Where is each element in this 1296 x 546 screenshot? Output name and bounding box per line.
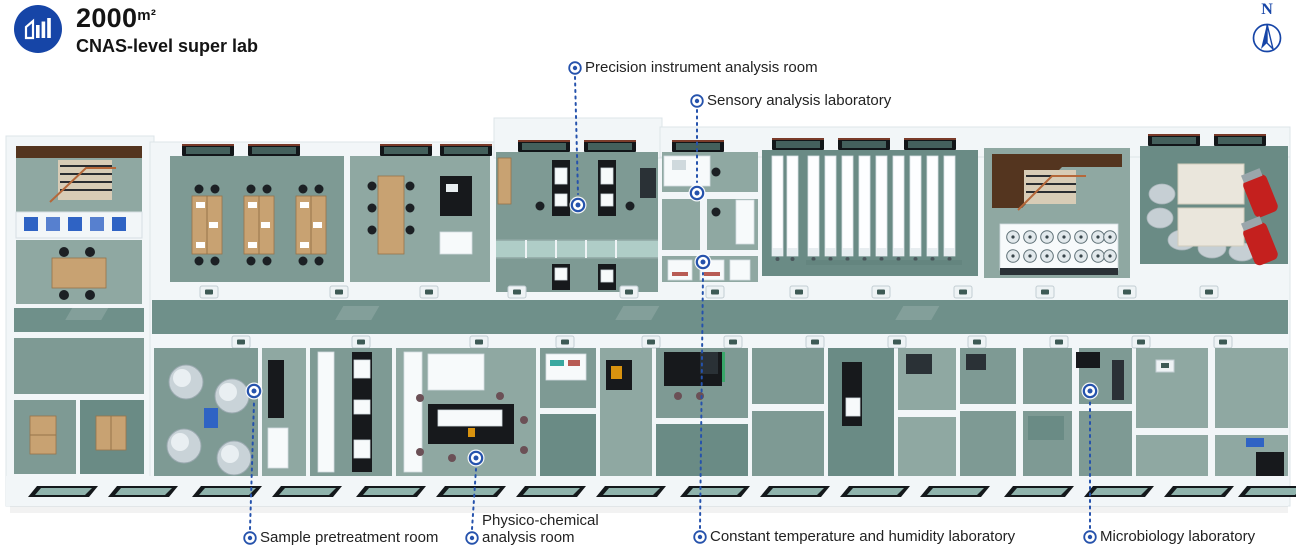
callout-label-constant-temperature-and-humidity-laboratory: Constant temperature and humidity labora… — [710, 528, 1015, 545]
compass-north-label: N — [1244, 2, 1290, 17]
callout-label-line: Constant temperature and humidity labora… — [710, 528, 1015, 545]
header: 2000m² CNAS-level super lab — [14, 5, 258, 57]
area-title: 2000m² — [76, 5, 258, 32]
callout-label-physico-chemical-analysis-room: Physico-chemicalanalysis room — [482, 512, 599, 546]
floorplan-render — [0, 0, 1296, 546]
area-unit: m² — [137, 7, 156, 24]
compass: N — [1244, 2, 1290, 62]
callout-label-line: Sample pretreatment room — [260, 529, 438, 546]
callout-label-microbiology-laboratory: Microbiology laboratory — [1100, 528, 1255, 545]
callout-label-precision-instrument-analysis-room: Precision instrument analysis room — [585, 59, 818, 76]
header-titles: 2000m² CNAS-level super lab — [76, 5, 258, 57]
callout-label-sample-pretreatment-room: Sample pretreatment room — [260, 529, 438, 546]
callout-label-line: Precision instrument analysis room — [585, 59, 818, 76]
area-value: 2000 — [76, 3, 137, 33]
callout-label-line: analysis room — [482, 529, 599, 546]
north-arrow-icon — [1247, 17, 1287, 57]
callout-label-line: Microbiology laboratory — [1100, 528, 1255, 545]
page: 2000m² CNAS-level super lab N — [0, 0, 1296, 546]
page-subtitle: CNAS-level super lab — [76, 36, 258, 57]
building-bars-icon — [14, 5, 62, 53]
callout-label-sensory-analysis-laboratory: Sensory analysis laboratory — [707, 92, 891, 109]
callout-label-line: Sensory analysis laboratory — [707, 92, 891, 109]
callout-label-line: Physico-chemical — [482, 512, 599, 529]
